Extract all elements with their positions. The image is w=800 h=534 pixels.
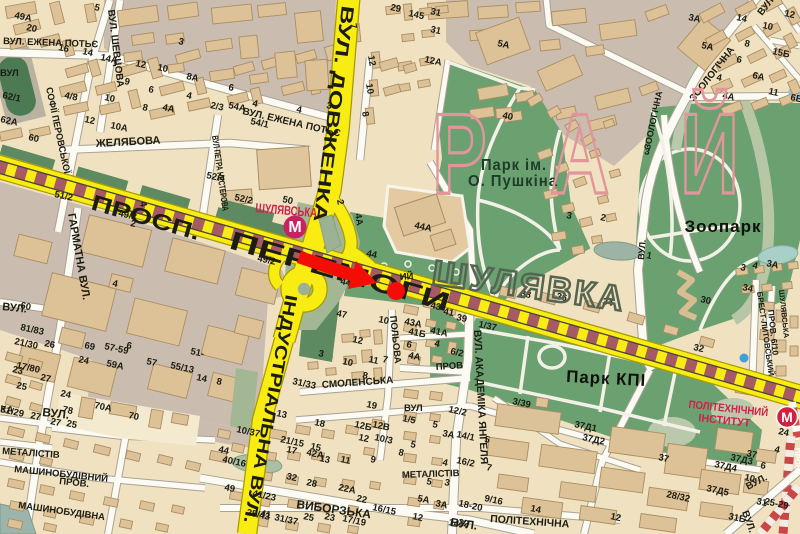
- svg-text:17: 17: [285, 444, 298, 457]
- svg-text:19: 19: [365, 399, 378, 412]
- svg-text:57: 57: [145, 356, 158, 369]
- svg-text:13: 13: [275, 408, 288, 421]
- svg-text:4А: 4А: [352, 213, 365, 227]
- svg-text:37: 37: [745, 448, 758, 461]
- svg-text:10: 10: [341, 356, 354, 369]
- svg-text:78: 78: [61, 404, 74, 417]
- svg-text:22: 22: [457, 517, 470, 530]
- svg-text:60: 60: [19, 300, 32, 313]
- svg-text:18: 18: [313, 417, 326, 430]
- svg-text:12: 12: [351, 334, 364, 347]
- svg-text:10: 10: [363, 83, 376, 95]
- svg-text:27: 27: [39, 372, 52, 385]
- svg-text:Й: Й: [680, 89, 739, 219]
- svg-text:12: 12: [365, 55, 378, 67]
- svg-text:22: 22: [355, 493, 368, 506]
- svg-text:20: 20: [25, 22, 38, 35]
- svg-text:12: 12: [411, 511, 424, 524]
- svg-text:13: 13: [318, 453, 331, 466]
- svg-text:37: 37: [657, 452, 670, 465]
- svg-text:10: 10: [743, 472, 756, 485]
- svg-text:ПРОВ: ПРОВ: [435, 360, 463, 373]
- svg-text:27: 27: [49, 416, 62, 429]
- svg-text:43: 43: [429, 300, 442, 313]
- svg-text:49: 49: [223, 482, 236, 495]
- svg-text:М: М: [288, 219, 301, 236]
- svg-text:12: 12: [83, 114, 96, 127]
- svg-text:Зоопарк: Зоопарк: [684, 217, 761, 236]
- svg-text:60: 60: [27, 132, 40, 145]
- svg-text:69: 69: [83, 340, 96, 353]
- svg-text:10: 10: [103, 92, 116, 105]
- svg-text:39: 39: [455, 312, 468, 325]
- svg-text:70: 70: [127, 410, 140, 423]
- svg-text:23: 23: [11, 364, 24, 377]
- svg-text:10: 10: [156, 62, 169, 75]
- svg-text:ВУЛ: ВУЛ: [404, 403, 423, 414]
- svg-text:50: 50: [281, 194, 294, 207]
- svg-text:12: 12: [357, 432, 370, 445]
- svg-text:12: 12: [134, 58, 147, 71]
- svg-text:Р: Р: [432, 91, 487, 218]
- svg-text:М: М: [781, 409, 793, 425]
- svg-text:Парк ім.: Парк ім.: [481, 157, 547, 174]
- svg-text:29: 29: [389, 2, 402, 15]
- svg-text:40: 40: [501, 110, 514, 123]
- svg-text:16: 16: [57, 42, 70, 55]
- svg-text:30: 30: [699, 294, 712, 307]
- svg-text:27: 27: [29, 410, 42, 423]
- svg-text:23: 23: [323, 511, 336, 524]
- svg-text:10: 10: [761, 20, 774, 33]
- svg-text:32: 32: [285, 471, 298, 484]
- svg-text:28: 28: [305, 477, 318, 490]
- svg-text:32: 32: [692, 342, 705, 355]
- svg-text:12: 12: [783, 8, 796, 21]
- svg-text:А: А: [550, 91, 609, 218]
- svg-text:47: 47: [335, 308, 348, 321]
- svg-text:ВУЛ: ВУЛ: [0, 68, 19, 79]
- svg-text:12: 12: [609, 511, 622, 524]
- svg-text:26: 26: [43, 338, 56, 351]
- svg-text:10: 10: [377, 314, 390, 327]
